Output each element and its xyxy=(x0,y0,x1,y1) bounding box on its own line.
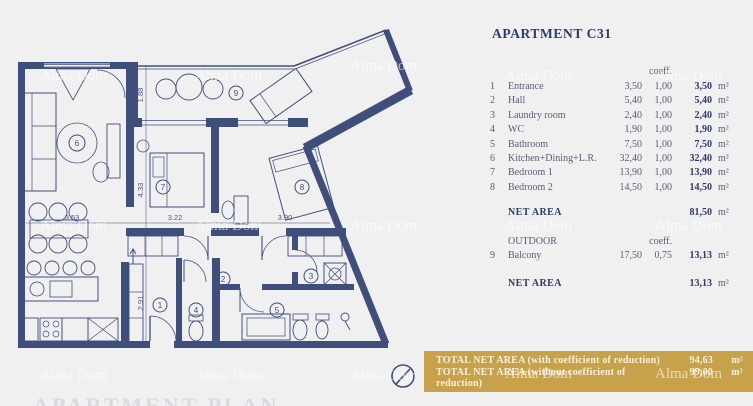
table-row: 5 Bathroom 7,50 1,00 7,50 m² xyxy=(490,139,740,153)
total-value: 99,00 xyxy=(667,367,713,389)
row-num: 9 xyxy=(490,250,506,261)
net-area-label: NET AREA xyxy=(506,207,606,218)
row-num: 3 xyxy=(490,110,506,121)
bed-1 xyxy=(150,153,204,207)
row-name: WC xyxy=(506,124,606,135)
row-num: 5 xyxy=(490,139,506,150)
row-coeff: 1,00 xyxy=(642,124,672,135)
total-label: TOTAL NET AREA (with coefficient of redu… xyxy=(436,355,667,366)
wall-wing-bottom xyxy=(305,90,411,148)
row-unit: m² xyxy=(712,110,732,121)
row-num: 6 xyxy=(490,153,506,164)
total-unit: m² xyxy=(713,355,743,366)
row-name: Entrance xyxy=(506,81,606,92)
outdoor-net-area-row: NET AREA 13,13 m² xyxy=(490,278,740,292)
table-row: 4 WC 1,90 1,00 1,90 m² xyxy=(490,124,740,138)
room-number-livingroom: 6 xyxy=(75,139,80,148)
net-area-unit: m² xyxy=(712,207,732,218)
coeff-header: coeff. xyxy=(642,66,672,77)
outdoor-header-row: OUTDOOR coeff. xyxy=(490,236,740,250)
toilet-wc xyxy=(189,321,203,341)
wall-bottom-right xyxy=(174,341,388,348)
net-area-row: NET AREA 81,50 m² xyxy=(490,207,740,221)
toilet-bathroom xyxy=(293,320,307,340)
sofa xyxy=(24,93,56,191)
total-unit: m² xyxy=(713,367,743,389)
row-num: 7 xyxy=(490,167,506,178)
row-coeff: 0,75 xyxy=(642,250,672,261)
dining-chair xyxy=(29,203,47,221)
row-area: 17,50 xyxy=(606,250,642,261)
row-coeff: 1,00 xyxy=(642,139,672,150)
floor-plan: 1.88 4.33 2.91 3.53 3.22 3.90 1 2 3 4 5 … xyxy=(0,0,440,406)
row-result: 32,40 xyxy=(672,153,712,164)
row-name: Hall xyxy=(506,95,606,106)
table-row-balcony: 9 Balcony 17,50 0,75 13,13 m² xyxy=(490,250,740,264)
row-result: 13,90 xyxy=(672,167,712,178)
room-number-laundry: 3 xyxy=(309,272,314,281)
row-area: 13,90 xyxy=(606,167,642,178)
row-result: 13,13 xyxy=(672,250,712,261)
row-area: 32,40 xyxy=(606,153,642,164)
outdoor-net-value: 13,13 xyxy=(672,278,712,289)
row-coeff: 1,00 xyxy=(642,182,672,193)
row-unit: m² xyxy=(712,250,732,261)
balcony-table xyxy=(176,74,202,100)
row-unit: m² xyxy=(712,139,732,150)
plan-caption: APARTMENT PLAN xyxy=(33,393,279,406)
row-name: Balcony xyxy=(506,250,606,261)
sink xyxy=(30,282,44,296)
room-number-entrance: 1 xyxy=(158,301,163,310)
kitchen-counter xyxy=(62,318,88,341)
row-area: 7,50 xyxy=(606,139,642,150)
row-area: 3,50 xyxy=(606,81,642,92)
row-name: Laundry room xyxy=(506,110,606,121)
room-number-balcony: 9 xyxy=(234,89,239,98)
door-bathroom xyxy=(240,288,264,312)
lounge-chair xyxy=(250,68,312,123)
area-table-panel: APARTMENT C31 coeff. 1 Entrance 3,50 1,0… xyxy=(490,26,740,293)
wall-wing-right xyxy=(386,30,410,91)
room-number-bedroom1: 7 xyxy=(161,183,166,192)
row-name: Bedroom 1 xyxy=(506,167,606,178)
row-unit: m² xyxy=(712,182,732,193)
row-coeff: 1,00 xyxy=(642,95,672,106)
bar-stool xyxy=(27,261,41,275)
row-area: 14,50 xyxy=(606,182,642,193)
net-area-value: 81,50 xyxy=(672,207,712,218)
table-row: 1 Entrance 3,50 1,00 3,50 m² xyxy=(490,81,740,95)
wall-wc-left xyxy=(176,258,182,348)
row-unit: m² xyxy=(712,124,732,135)
table-row: 8 Bedroom 2 14,50 1,00 14,50 m² xyxy=(490,182,740,196)
totals-bar: TOTAL NET AREA (with coefficient of redu… xyxy=(424,351,753,392)
row-unit: m² xyxy=(712,167,732,178)
row-name: Kitchen+Dining+L.R. xyxy=(506,153,606,164)
balcony-chair xyxy=(156,79,176,99)
row-area: 1,90 xyxy=(606,124,642,135)
table-header: coeff. xyxy=(490,66,740,81)
bidet xyxy=(316,321,328,339)
door-livingroom xyxy=(97,70,125,98)
wall-laundry xyxy=(292,272,298,286)
outdoor-coeff-header: coeff. xyxy=(642,236,672,247)
row-num: 4 xyxy=(490,124,506,135)
wall-corridor-1 xyxy=(126,228,184,236)
row-area: 2,40 xyxy=(606,110,642,121)
row-result: 14,50 xyxy=(672,182,712,193)
dim-label: 3.53 xyxy=(65,213,80,222)
dim-label: 2.91 xyxy=(136,296,145,311)
stove xyxy=(40,318,62,341)
row-result: 1,90 xyxy=(672,124,712,135)
nightstand xyxy=(137,140,149,152)
wall-corridor-2 xyxy=(211,228,259,236)
table-row: 2 Hall 5,40 1,00 5,40 m² xyxy=(490,95,740,109)
row-coeff: 1,00 xyxy=(642,110,672,121)
row-area: 5,40 xyxy=(606,95,642,106)
wall-livingroom-bedroom1 xyxy=(126,127,134,207)
total-with-coeff-row: TOTAL NET AREA (with coefficient of redu… xyxy=(436,355,743,366)
dim-label: 3.90 xyxy=(278,213,293,222)
dim-label: 1.88 xyxy=(136,88,145,103)
row-result: 5,40 xyxy=(672,95,712,106)
outdoor-label: OUTDOOR xyxy=(506,236,606,247)
apartment-title: APARTMENT C31 xyxy=(492,26,740,42)
wall-corridor-3 xyxy=(286,228,346,236)
desk-chair xyxy=(222,201,234,219)
total-value: 94,63 xyxy=(667,355,713,366)
door-bedroom2 xyxy=(262,236,286,260)
room-number-bathroom: 5 xyxy=(275,306,280,315)
row-result: 2,40 xyxy=(672,110,712,121)
row-coeff: 1,00 xyxy=(642,153,672,164)
row-name: Bedroom 2 xyxy=(506,182,606,193)
desk xyxy=(234,196,248,224)
row-num: 2 xyxy=(490,95,506,106)
window-opening-symbol xyxy=(56,69,90,100)
row-coeff: 1,00 xyxy=(642,167,672,178)
table-row: 3 Laundry room 2,40 1,00 2,40 m² xyxy=(490,110,740,124)
row-result: 3,50 xyxy=(672,81,712,92)
screenshot-root: 1.88 4.33 2.91 3.53 3.22 3.90 1 2 3 4 5 … xyxy=(0,0,753,406)
row-unit: m² xyxy=(712,95,732,106)
wall-bottom-left xyxy=(18,341,150,348)
row-num: 8 xyxy=(490,182,506,193)
row-unit: m² xyxy=(712,81,732,92)
wall-wc-right xyxy=(212,258,220,348)
door-wc xyxy=(184,260,206,282)
table-row: 6 Kitchen+Dining+L.R. 32,40 1,00 32,40 m… xyxy=(490,153,740,167)
row-result: 7,50 xyxy=(672,139,712,150)
room-number-hall: 2 xyxy=(221,275,226,284)
row-num: 1 xyxy=(490,81,506,92)
table-row: 7 Bedroom 1 13,90 1,00 13,90 m² xyxy=(490,167,740,181)
pillow xyxy=(153,157,164,177)
shower xyxy=(341,313,349,321)
dim-label: 3.22 xyxy=(168,213,183,222)
row-coeff: 1,00 xyxy=(642,81,672,92)
room-number-wc: 4 xyxy=(194,306,199,315)
total-label: TOTAL NET AREA (without coefficient of r… xyxy=(436,367,667,389)
row-name: Bathroom xyxy=(506,139,606,150)
outdoor-net-unit: m² xyxy=(712,278,732,289)
row-unit: m² xyxy=(712,153,732,164)
dim-label: 4.33 xyxy=(136,183,145,198)
door-bedroom1 xyxy=(184,236,208,260)
wall-bedroom1-bedroom2 xyxy=(211,127,219,213)
room-number-bedroom2: 8 xyxy=(300,183,305,192)
total-without-coeff-row: TOTAL NET AREA (without coefficient of r… xyxy=(436,367,743,389)
outdoor-net-label: NET AREA xyxy=(506,278,606,289)
